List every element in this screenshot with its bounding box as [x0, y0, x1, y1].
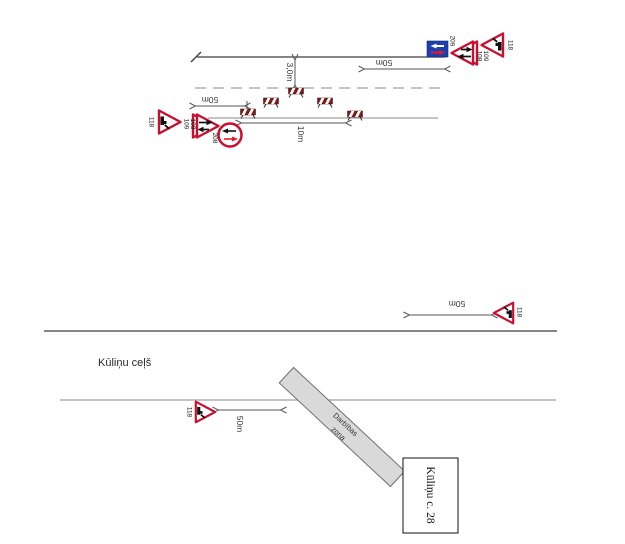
road-name-label: Kūliņu ceļš	[98, 357, 152, 369]
sign-label-208: 208	[211, 133, 218, 144]
zone-length-label: 10m	[296, 126, 306, 143]
sign-label-108-left: 108	[189, 119, 196, 130]
barrier-board-icon	[348, 111, 363, 121]
warning-sign-118-bottom-left-icon	[196, 402, 215, 423]
lane-width-label: 3,0m	[285, 63, 295, 82]
sign-label-118-bottom-left: 118	[186, 407, 193, 418]
building-box: Kūliņu c. 28	[403, 458, 458, 533]
bottom-right-50m-label: 50m	[449, 299, 466, 309]
building-label: Kūliņu c. 28	[424, 466, 436, 523]
sign-label-118-right: 118	[507, 40, 514, 51]
sign-label-118-left: 118	[148, 117, 155, 128]
right-50m-label: 50m	[376, 58, 393, 68]
warning-sign-118-bottom-right-icon	[494, 303, 513, 324]
barrier-board-icon	[289, 88, 304, 98]
priority-sign-208-icon	[219, 124, 242, 147]
sign-label-209: 209	[449, 36, 456, 47]
warning-sign-118-left-icon	[159, 111, 181, 134]
work-zone-rect: Darbības zona	[279, 367, 404, 486]
sign-label-118-bottom-right: 118	[516, 307, 523, 318]
traffic-scheme-page: 118 109 108 208 209 108 109 118 3,0m 50m…	[0, 0, 625, 544]
bottom-site-plan: Kūliņu ceļš Darbības zona Kūliņu c. 28 1…	[44, 299, 557, 533]
traffic-scheme-drawing: 118 109 108 208 209 108 109 118 3,0m 50m…	[0, 0, 625, 544]
priority-sign-209-icon	[427, 41, 448, 57]
barrier-board-icon	[318, 98, 333, 108]
sign-label-109-left: 109	[183, 119, 190, 130]
barrier-board-icon	[241, 109, 256, 119]
sign-label-108-right: 108	[476, 51, 483, 62]
top-road-plan: 118 109 108 208 209 108 109 118 3,0m 50m…	[148, 34, 514, 147]
sign-label-109-right: 109	[482, 51, 489, 62]
barrier-board-icon	[264, 98, 279, 108]
left-50m-label: 50m	[202, 95, 219, 105]
bottom-left-50m-label: 50m	[235, 416, 245, 433]
